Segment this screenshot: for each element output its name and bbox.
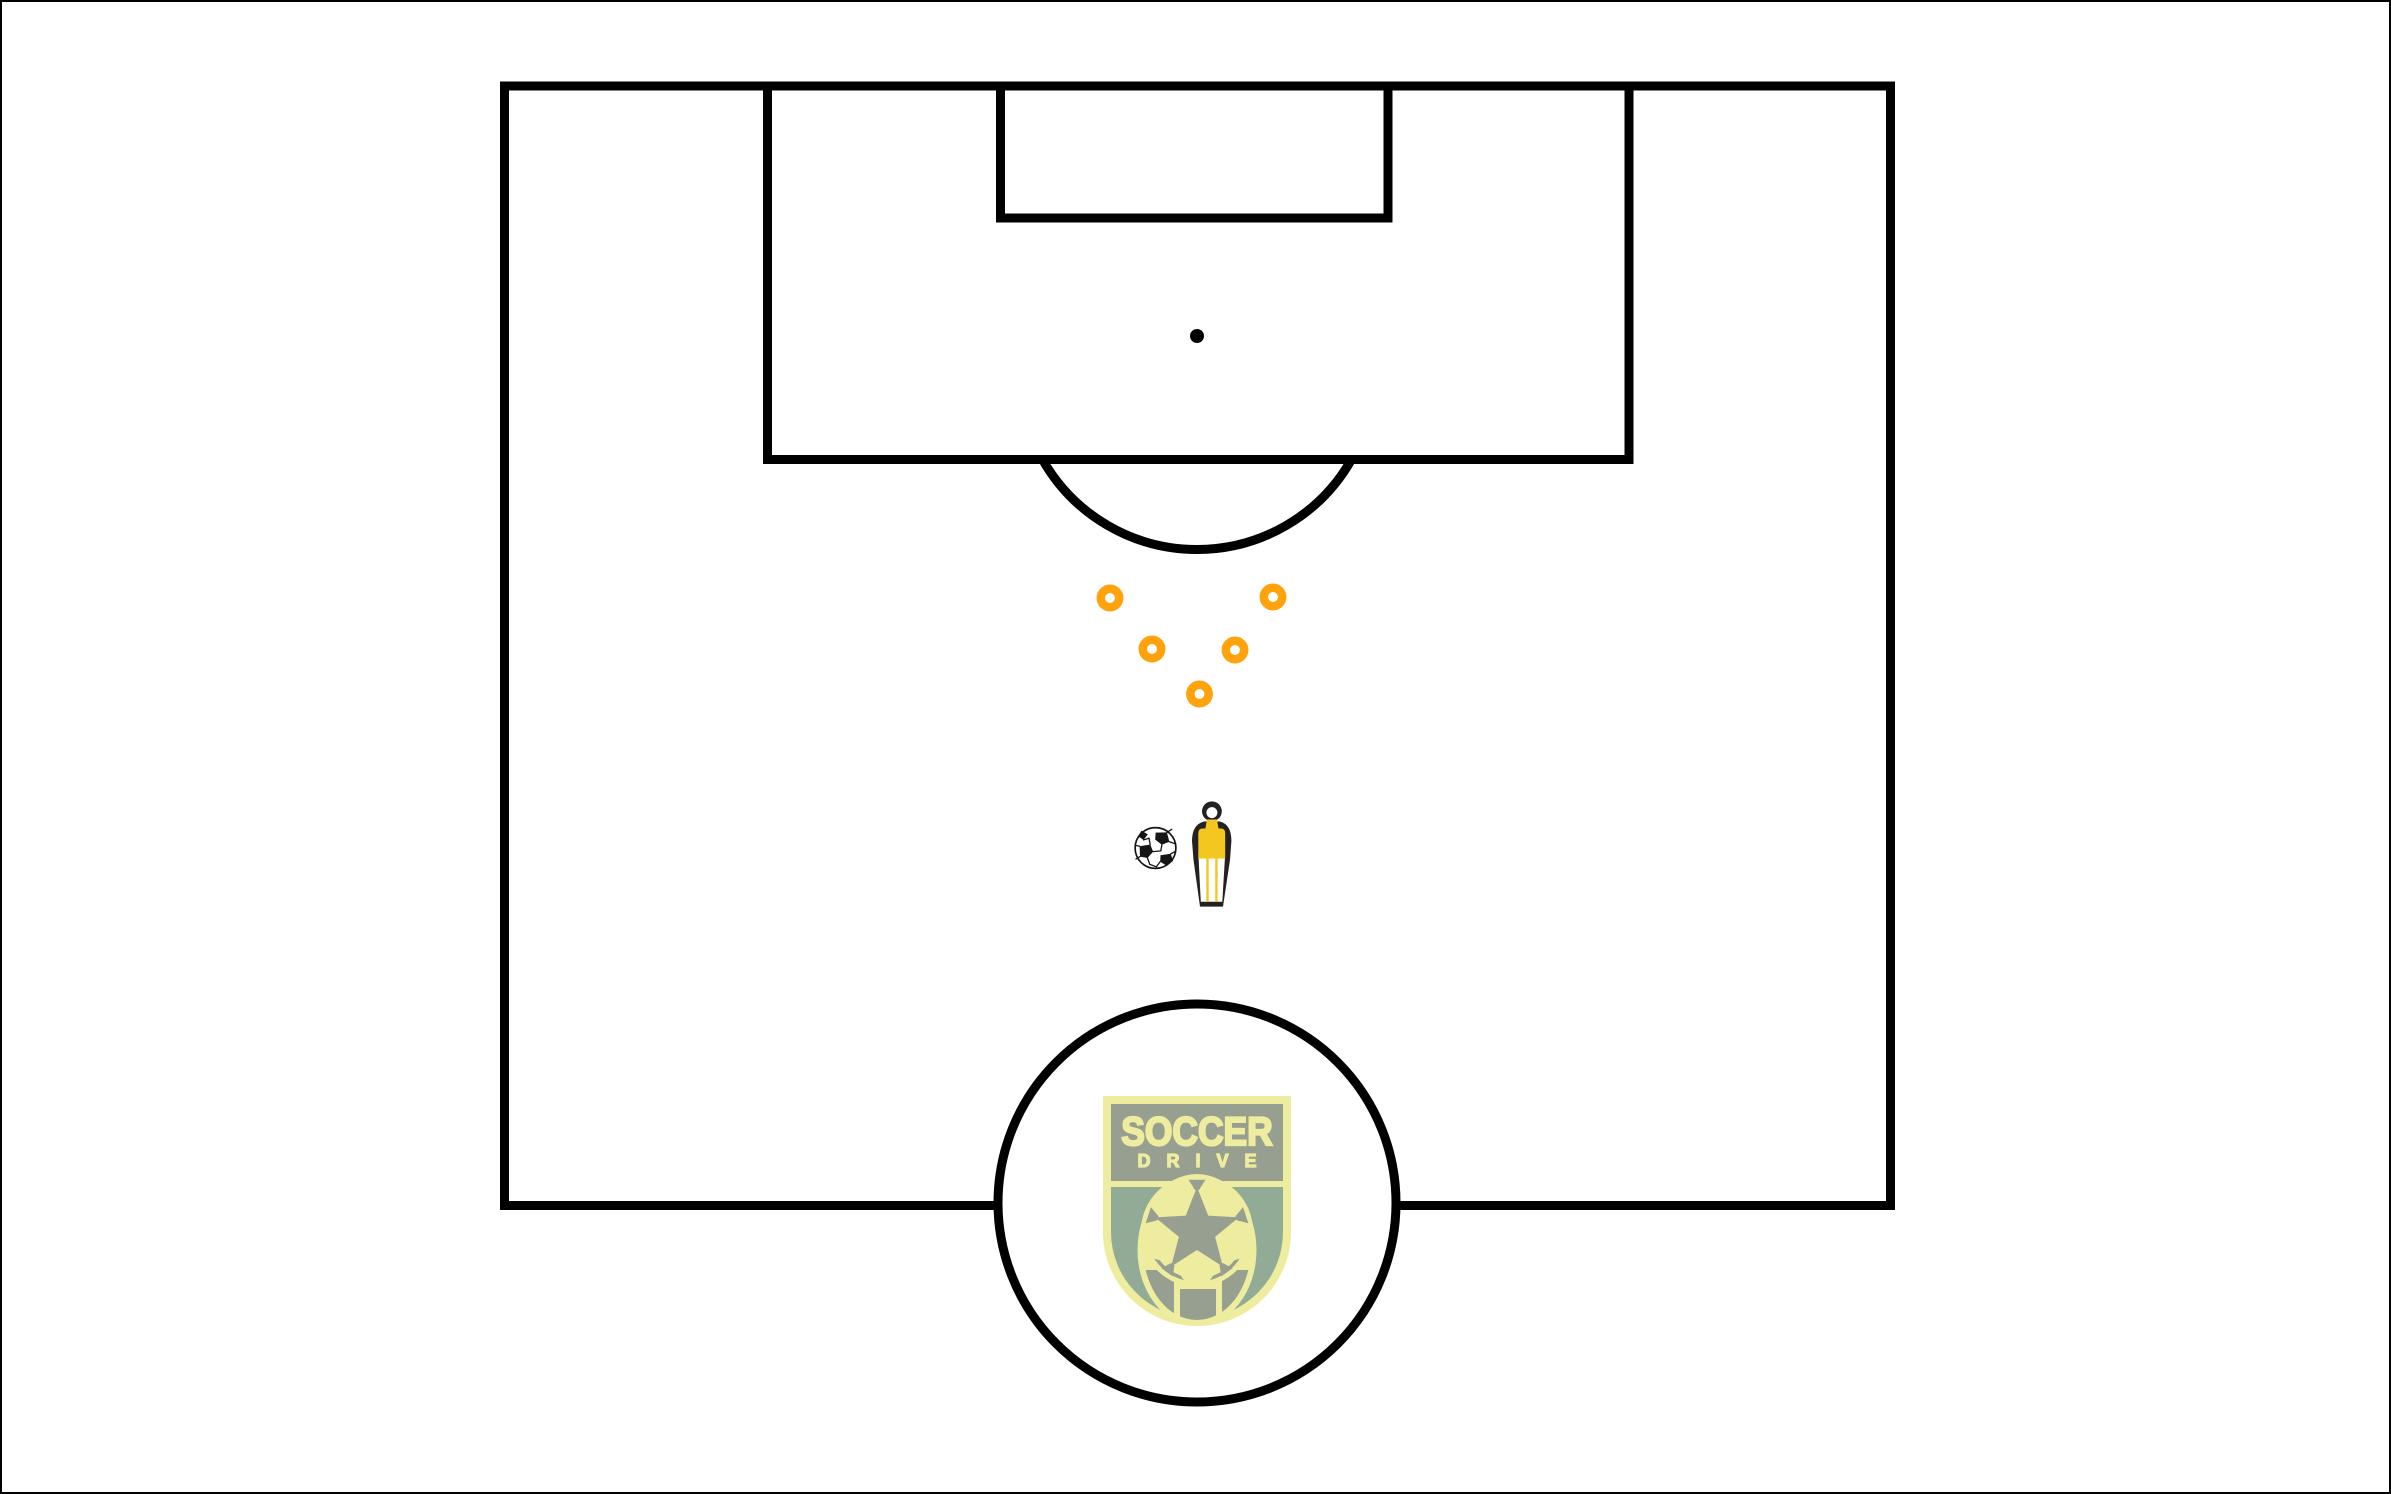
svg-text:SOCCER: SOCCER bbox=[1121, 1110, 1272, 1154]
svg-text:DRIVE: DRIVE bbox=[1137, 1151, 1272, 1171]
